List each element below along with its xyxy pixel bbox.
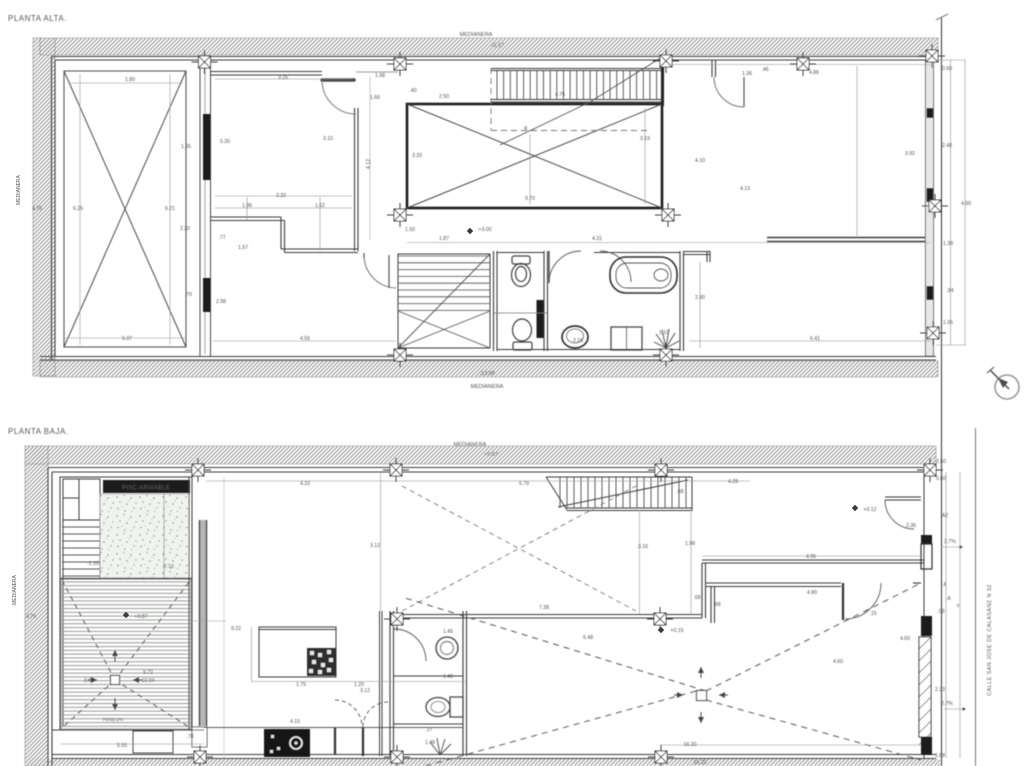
svg-text:MEDIANERA: MEDIANERA (471, 384, 504, 390)
svg-text:.77: .77 (218, 235, 225, 241)
svg-text:4.96: 4.96 (806, 554, 816, 560)
svg-text:1.98: 1.98 (375, 73, 385, 79)
svg-text:3.16: 3.16 (638, 544, 648, 550)
svg-text:79: 79 (186, 292, 192, 298)
svg-text:1.05: 1.05 (943, 320, 953, 326)
svg-text:0.60: 0.60 (936, 476, 946, 482)
svg-text:16.20: 16.20 (684, 742, 697, 748)
svg-text:4.75: 4.75 (555, 92, 565, 98)
svg-text:1.75: 1.75 (296, 682, 306, 688)
svg-text:.84: .84 (946, 288, 953, 294)
svg-text:.68: .68 (713, 602, 720, 608)
svg-text:4.28: 4.28 (728, 479, 738, 485)
svg-text:7.38: 7.38 (539, 605, 549, 611)
svg-text:+3.00: +3.00 (478, 227, 491, 233)
svg-text:CALLE SAN JOSE DE CALASANZ N 3: CALLE SAN JOSE DE CALASANZ N 32 (987, 584, 993, 695)
svg-text:3.12: 3.12 (360, 688, 370, 694)
svg-text:PLANTA BAJA.: PLANTA BAJA. (8, 427, 69, 436)
svg-text:A: A (947, 596, 951, 602)
svg-text:4.12: 4.12 (366, 159, 372, 169)
svg-text:6.48: 6.48 (583, 635, 593, 641)
svg-text:PEND.2%: PEND.2% (103, 717, 123, 722)
svg-text:1.38: 1.38 (943, 241, 953, 247)
svg-text:4.31: 4.31 (592, 236, 602, 242)
svg-text:.68: .68 (676, 489, 683, 495)
svg-text:.15: .15 (869, 611, 876, 617)
svg-text:3.20: 3.20 (276, 193, 286, 199)
svg-text:6.41: 6.41 (810, 336, 820, 342)
svg-text:A2: A2 (942, 513, 948, 519)
svg-text:K: K (524, 126, 528, 132)
svg-text:.08: .08 (937, 609, 944, 615)
svg-text:1.36: 1.36 (742, 71, 752, 77)
svg-text:2.50: 2.50 (936, 459, 946, 465)
svg-text:3.25: 3.25 (278, 75, 288, 81)
svg-text:MEDIANERA: MEDIANERA (16, 174, 22, 204)
svg-text:1.40: 1.40 (443, 674, 453, 680)
svg-text:3.19: 3.19 (640, 136, 650, 142)
svg-text:.4: .4 (942, 582, 946, 588)
svg-text:2.98: 2.98 (216, 299, 226, 305)
svg-text:4.80: 4.80 (807, 590, 817, 596)
svg-text:.40: .40 (409, 88, 416, 94)
svg-text:3.10: 3.10 (323, 136, 333, 142)
svg-text:3.92: 3.92 (905, 151, 915, 157)
svg-text:MEDIANERA: MEDIANERA (460, 32, 493, 38)
svg-text:9.70: 9.70 (525, 196, 535, 202)
svg-text:1.10: 1.10 (659, 330, 669, 336)
svg-text:1.50: 1.50 (405, 227, 415, 233)
svg-text:2.48: 2.48 (942, 143, 952, 149)
svg-text:4.75: 4.75 (26, 614, 36, 620)
svg-text:.27: .27 (425, 727, 432, 733)
svg-text:4.60: 4.60 (833, 659, 843, 665)
svg-text:MEDIANERA: MEDIANERA (12, 574, 18, 604)
svg-text:2.16: 2.16 (573, 338, 583, 344)
svg-text:2.7%: 2.7% (944, 539, 956, 545)
svg-text:2.50: 2.50 (439, 94, 449, 100)
svg-text:1.68: 1.68 (935, 753, 945, 759)
svg-text:4.75: 4.75 (32, 206, 42, 212)
svg-text:-1.10: -1.10 (87, 561, 99, 567)
svg-text:PLANTA ALTA.: PLANTA ALTA. (8, 14, 67, 23)
svg-text:1.48: 1.48 (425, 740, 435, 746)
svg-text:2.7%: 2.7% (941, 701, 953, 707)
svg-text:1.98: 1.98 (685, 541, 695, 547)
svg-text:-2.10: -2.10 (162, 564, 174, 570)
svg-text:1.45: 1.45 (443, 629, 453, 635)
svg-text:1.62: 1.62 (315, 203, 325, 209)
svg-text:2.36: 2.36 (906, 523, 916, 529)
svg-text:0.60: 0.60 (942, 66, 952, 72)
svg-text:4.55: 4.55 (300, 336, 310, 342)
svg-text:4.15: 4.15 (290, 719, 300, 725)
svg-text:3.13: 3.13 (370, 543, 380, 549)
svg-text:1.87: 1.87 (439, 236, 449, 242)
svg-text:+0.12: +0.12 (863, 507, 876, 513)
svg-text:-13.98: -13.98 (479, 371, 495, 377)
svg-text:+0.87: +0.87 (134, 614, 147, 620)
svg-text:4.86: 4.86 (809, 70, 819, 76)
svg-text:1.96: 1.96 (242, 203, 252, 209)
svg-text:.78: .78 (186, 734, 193, 740)
svg-text:6.21: 6.21 (165, 206, 175, 212)
svg-text:4.33: 4.33 (300, 481, 310, 487)
svg-text:2.90: 2.90 (695, 295, 705, 301)
svg-text:1.95: 1.95 (181, 144, 191, 150)
svg-text:4.13: 4.13 (740, 186, 750, 192)
svg-text:3.33: 3.33 (412, 153, 422, 159)
svg-text:2.20: 2.20 (180, 226, 190, 232)
svg-text:+0.15: +0.15 (670, 628, 683, 634)
svg-text:5.93: 5.93 (117, 743, 127, 749)
svg-text:9.72: 9.72 (143, 670, 153, 676)
svg-text:s: s (957, 603, 960, 609)
svg-text:5.37: 5.37 (122, 336, 132, 342)
svg-text:1.66: 1.66 (370, 95, 380, 101)
svg-text:9.22: 9.22 (231, 626, 241, 632)
svg-text:5.79: 5.79 (519, 481, 529, 487)
svg-text:.46: .46 (761, 67, 768, 73)
svg-text:5.30: 5.30 (220, 139, 230, 145)
svg-text:1.57: 1.57 (238, 245, 248, 251)
svg-text:.68: .68 (693, 595, 700, 601)
svg-text:4.90: 4.90 (961, 201, 971, 207)
svg-text:6.25: 6.25 (73, 206, 83, 212)
svg-text:-0.9: -0.9 (83, 678, 92, 684)
svg-text:16.20: 16.20 (694, 760, 707, 766)
svg-text:4.60: 4.60 (900, 636, 910, 642)
svg-text:2.33: 2.33 (935, 687, 945, 693)
svg-text:1.80: 1.80 (125, 77, 135, 83)
svg-text:4.10: 4.10 (695, 158, 705, 164)
svg-text:PISC.ARMABLE: PISC.ARMABLE (122, 486, 170, 492)
svg-text:10.04: 10.04 (142, 678, 155, 684)
